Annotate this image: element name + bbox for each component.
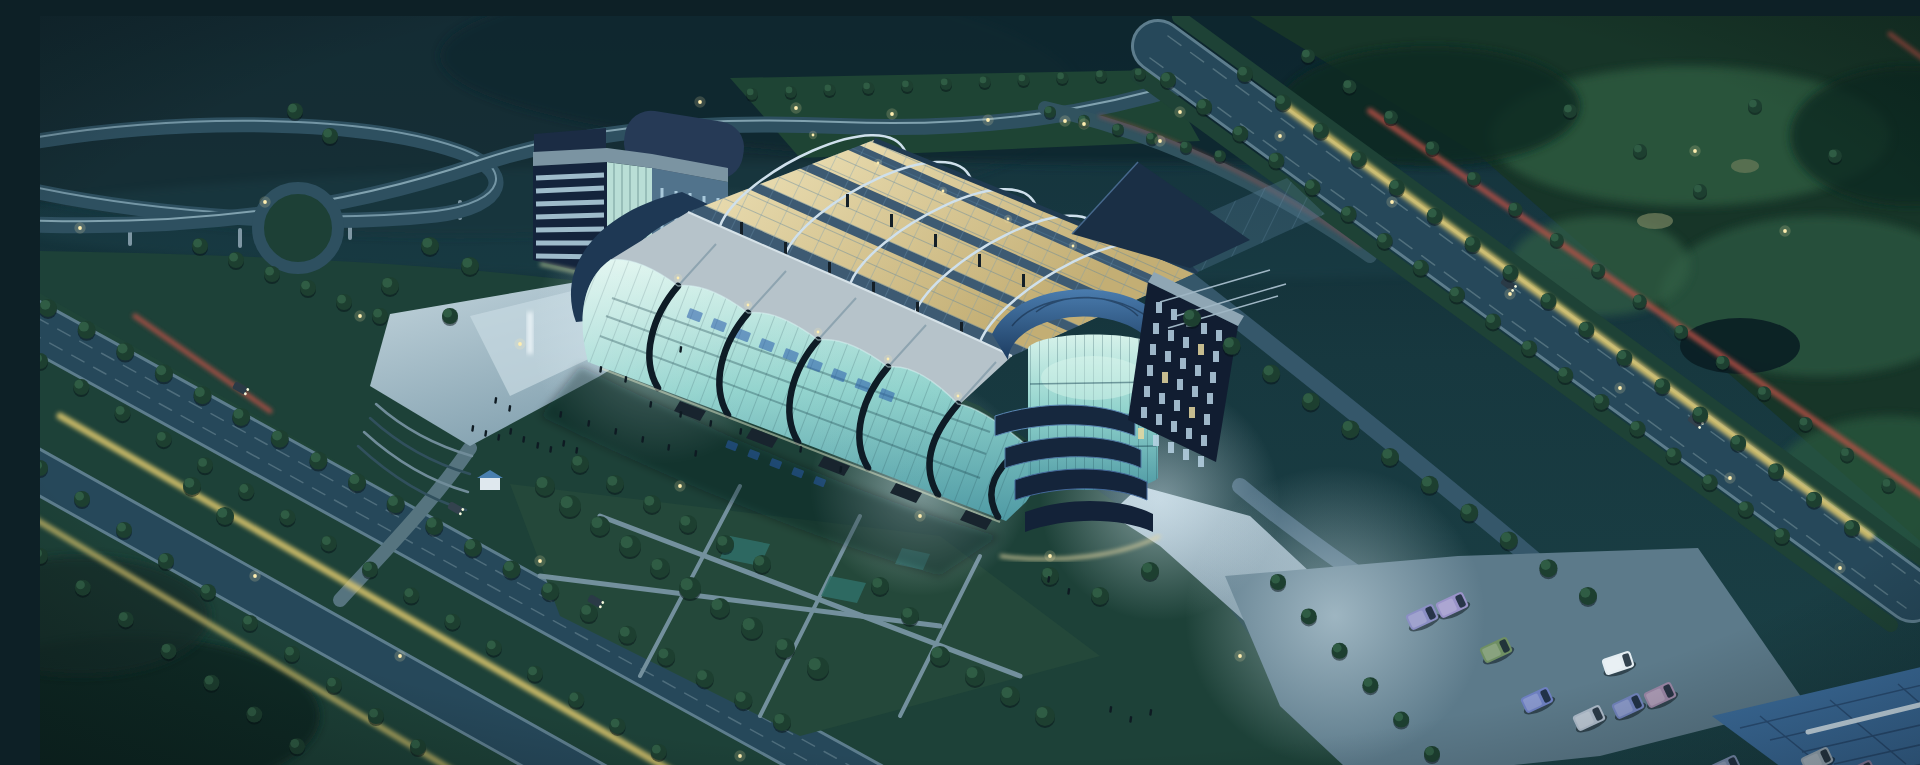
architectural-rendering	[40, 16, 1920, 765]
vignette-overlay	[40, 16, 1920, 765]
